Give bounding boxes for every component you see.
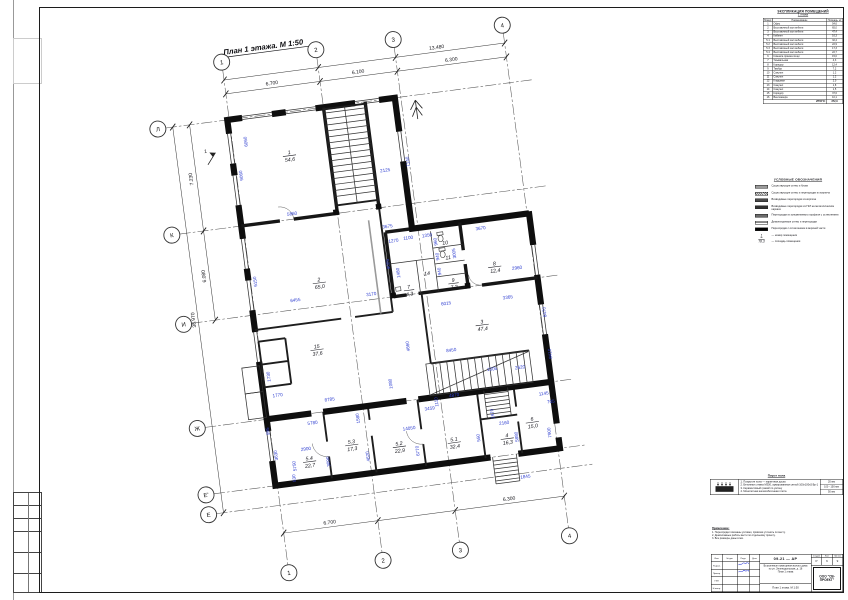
legend-item: Перегородки с остеклением в верхней част… xyxy=(755,227,841,231)
dimension-label: 6.300 xyxy=(445,56,458,64)
dimension-label: 13.480 xyxy=(429,44,445,52)
explication-table: Номер помещ. Наименование Площадь, м² 1О… xyxy=(763,18,843,104)
interior-walls-main xyxy=(227,82,537,315)
notes-panel: Примечание: 1. Перегородки показаны усло… xyxy=(712,527,812,540)
dimension-label: 6.700 xyxy=(265,80,278,88)
legend-items: Существующие стены и блокиСуществующие с… xyxy=(755,185,841,232)
dimension-label: 7900 xyxy=(546,427,552,438)
axis-bubble-2: 2 xyxy=(307,41,325,59)
dimension-label: 1505 xyxy=(487,366,498,372)
tb-staff-row: Провер. xyxy=(712,570,760,578)
glazed-partition-swatch xyxy=(755,228,768,232)
staircase-exit xyxy=(493,454,520,484)
svg-text:12,4: 12,4 xyxy=(490,268,501,275)
dimension-label: 1080 xyxy=(387,378,393,389)
axis-bubble-1: 1 xyxy=(280,564,298,582)
staircase-main xyxy=(324,104,378,206)
room-label: 14 xyxy=(424,271,431,278)
dimension-label: 5750 xyxy=(291,460,297,471)
svg-text:7,2: 7,2 xyxy=(450,284,458,291)
axis-bubble-Ж: Ж xyxy=(188,419,206,437)
dimension-label: 995 xyxy=(265,427,271,436)
tb-staff-row: Н.контр. xyxy=(712,585,760,592)
svg-text:32,4: 32,4 xyxy=(450,444,461,451)
dimension-label: 6455 xyxy=(290,297,301,303)
dimension-label: 2960 xyxy=(512,265,523,271)
svg-text:16,3: 16,3 xyxy=(502,440,513,447)
dimension-label: 5860 xyxy=(287,211,298,217)
legend-item: Возводимые перегородки из ГКЛ на металли… xyxy=(755,205,841,211)
room-label: 265,0 xyxy=(312,276,327,291)
room-label: 5.317,3 xyxy=(344,439,359,454)
side-stamp-lower xyxy=(13,492,42,593)
dimension-label: 1145 xyxy=(538,390,549,396)
dimension-label: 6150 xyxy=(252,276,258,287)
legend-symbols: 1— номер помещения78,3— площадь помещени… xyxy=(755,234,841,244)
dimension-label: 14050 xyxy=(402,425,416,432)
tb-staff-row: ГИП xyxy=(712,577,760,585)
svg-text:15,0: 15,0 xyxy=(528,423,539,430)
dimension-label: 7140 xyxy=(405,156,411,167)
signature xyxy=(738,563,749,567)
floor-buildup-items: 1. Покрытие пола — паркетная доска2. Бет… xyxy=(739,480,820,495)
tb-staff-row: Разраб. xyxy=(712,562,760,570)
explication-subtitle: 1 этажа xyxy=(763,14,843,17)
dimension-label: 1845 xyxy=(520,473,531,479)
signature xyxy=(738,570,749,574)
dimension-label: 3170 xyxy=(366,291,377,297)
svg-text:17,3: 17,3 xyxy=(347,446,358,453)
dimension-label: 4660 xyxy=(405,340,411,351)
document-code: 09-21 — АР xyxy=(760,555,811,564)
plan-title: План 1 этажа. М 1:50 xyxy=(223,37,305,57)
room-label: 10 xyxy=(442,240,449,247)
axis-bubble-4: 4 xyxy=(493,16,511,34)
dimension-label: 3090 xyxy=(325,456,331,467)
svg-text:Л: Л xyxy=(156,127,161,133)
svg-text:4,3: 4,3 xyxy=(406,291,414,298)
dimension-label: 4620 xyxy=(365,451,371,462)
svg-text:10: 10 xyxy=(442,240,449,247)
explication-body: 1Офис54,62Выставочный зал мебели65,03Выс… xyxy=(763,22,843,100)
legend-panel: УСЛОВНЫЕ ОБОЗНАЧЕНИЯ Существующие стены … xyxy=(755,178,841,246)
svg-text:22,9: 22,9 xyxy=(394,448,406,455)
legend-item: Возводимые перегородки из кирпича xyxy=(755,198,841,202)
dimension-label: 940 xyxy=(436,267,442,276)
floor-layer: 4. Монолитная железобетонная плита xyxy=(741,490,819,493)
floor-buildup-thickness: 20 мм100 - 150 мм50 мм xyxy=(820,480,843,495)
svg-text:И: И xyxy=(181,322,186,329)
dimension-label: 1580 xyxy=(355,413,361,424)
dimension-label: 6470 xyxy=(541,306,547,317)
dimension-label: 6.080 xyxy=(201,269,209,282)
axis-bubble-3: 3 xyxy=(451,541,469,559)
svg-text:11: 11 xyxy=(445,255,451,262)
svg-text:Е: Е xyxy=(206,513,211,519)
existing-wall-swatch xyxy=(755,185,768,189)
dimension-label: 6.100 xyxy=(352,69,365,77)
axis-bubble-Л: Л xyxy=(149,120,167,138)
dimension-label: 3675 xyxy=(382,223,393,229)
dimension-label: 3630 xyxy=(273,450,279,461)
sheet-name: План 1 этажа. М 1:50 xyxy=(760,584,811,592)
demounted-partition-swatch xyxy=(755,221,768,225)
dimension-label: 2620 xyxy=(515,364,526,370)
total-value: 372,9 xyxy=(826,100,843,104)
dimension-label: 7.230 xyxy=(188,172,196,185)
svg-text:47,4: 47,4 xyxy=(477,326,488,333)
axis-bubble-Е: Е xyxy=(200,506,218,524)
stage-sheet-cells: СтадияР Лист6 Листов9 xyxy=(812,555,843,566)
room-label: 5.132,4 xyxy=(447,436,462,451)
notes-lines: 1. Перегородки показаны условно, привязк… xyxy=(712,531,812,540)
axis-bubble-2: 2 xyxy=(374,551,392,569)
explication-total-row: ИТОГО: 372,9 xyxy=(763,100,843,104)
legend-item: Существующие стены и блоки xyxy=(755,185,841,189)
room-label: 812,4 xyxy=(487,260,502,275)
dimension-label: 1480 xyxy=(395,267,401,278)
notes-title: Примечание: xyxy=(712,527,812,530)
axis-bubble-Е': Е' xyxy=(197,486,215,504)
tb-header-row: Изм.№ док.Подп.Дата xyxy=(712,555,760,563)
legend-symbol: 78,3— площадь помещения xyxy=(755,240,841,244)
dimension-label: 1100 xyxy=(403,235,414,241)
dimension-label: 3365 xyxy=(502,294,513,300)
dimension-label: 6.700 xyxy=(323,519,336,527)
legend-title: УСЛОВНЫЕ ОБОЗНАЧЕНИЯ xyxy=(755,178,841,182)
dimension-label: 8450 xyxy=(446,347,457,353)
floor-buildup-panel: Пирог пола 1. Покрытие пола — паркетная … xyxy=(710,474,843,495)
axis-bubble-К: К xyxy=(163,226,181,244)
dimension-label: 960 xyxy=(432,237,438,246)
floor-plan: 1 План 1 этажа. М 1:50 12341234ЛКИЖЕ'Е13… xyxy=(102,0,633,600)
dimension-label: 2125 xyxy=(380,167,391,173)
dimension-label: 2160 xyxy=(499,420,510,426)
svg-text:1: 1 xyxy=(204,149,208,155)
dimension-label: 1730 xyxy=(265,371,271,382)
drawing-sheet: 1 План 1 этажа. М 1:50 12341234ЛКИЖЕ'Е13… xyxy=(0,0,848,600)
north-benchmark-icon xyxy=(409,99,423,119)
dimension-label: 2900 xyxy=(300,446,311,452)
svg-text:65,0: 65,0 xyxy=(315,284,326,291)
dimension-label: 3670 xyxy=(475,225,486,231)
axis-bubble-4: 4 xyxy=(561,527,579,545)
dimension-label: 3005 xyxy=(451,248,457,259)
dimension-label: 8410 xyxy=(547,348,553,359)
dimension-label: 6770 xyxy=(414,445,420,456)
dimension-label: 530 xyxy=(291,474,297,483)
room-label: 1537,6 xyxy=(310,343,325,358)
dimension-label: 9060 xyxy=(238,170,244,181)
section-mark: 1 xyxy=(204,148,217,165)
svg-text:14: 14 xyxy=(424,271,431,278)
note-line: 3. Все размеры даны в мм. xyxy=(712,537,812,540)
existing-partition-swatch xyxy=(755,192,768,196)
dimension-label: 8785 xyxy=(324,396,335,402)
side-stamp-upper xyxy=(13,38,42,84)
svg-text:22,7: 22,7 xyxy=(304,462,317,470)
room-label: 5.222,9 xyxy=(392,440,407,455)
layer-thickness: 50 мм xyxy=(821,490,843,495)
explication-panel: ЭКСПЛИКАЦИЯ ПОМЕЩЕНИЙ 1 этажа Номер поме… xyxy=(763,10,843,104)
dimension-label: 6060 xyxy=(243,136,249,147)
title-block-signatures: Изм.№ док.Подп.Дата Разраб. Провер. ГИП … xyxy=(712,555,761,592)
dimension-label: 1270 xyxy=(388,238,399,244)
total-label: ИТОГО: xyxy=(763,100,826,104)
object-name: Встроенные помещения жилого дома по ул. … xyxy=(760,564,811,584)
dimension-label: 705 xyxy=(547,399,556,405)
new-brick-partition-swatch xyxy=(755,199,768,203)
interior-walls-light xyxy=(241,191,542,486)
room-label: 416,3 xyxy=(500,432,515,447)
svg-text:Е': Е' xyxy=(203,493,209,500)
room-label: 11 xyxy=(445,255,451,262)
room-label: 154,6 xyxy=(282,149,297,164)
dimension-label: 4870 xyxy=(449,392,460,398)
dimension-label: 5780 xyxy=(307,420,318,426)
legend-symbol: 1— номер помещения xyxy=(755,234,841,238)
room-label: 615,0 xyxy=(525,416,540,431)
room-label: 347,4 xyxy=(475,319,490,334)
floor-buildup-title: Пирог пола xyxy=(710,474,843,478)
legend-item: Существующие стены и перегородки из кирп… xyxy=(755,191,841,195)
dimension-label: 6.300 xyxy=(503,496,516,504)
aluminium-partition-swatch xyxy=(755,214,768,218)
room-label: 5.422,7 xyxy=(302,455,317,470)
floor-section-icon xyxy=(711,480,740,495)
new-gkl-partition-swatch xyxy=(755,205,768,209)
legend-item: Перегородки из алюминиевого профиля с ос… xyxy=(755,214,841,218)
title-block: Изм.№ док.Подп.Дата Разраб. Провер. ГИП … xyxy=(711,554,843,592)
dimension-label: 940 xyxy=(434,252,440,261)
svg-text:54,6: 54,6 xyxy=(285,157,296,164)
dimension-label: 1770 xyxy=(272,392,283,398)
svg-text:Ж: Ж xyxy=(194,426,201,433)
svg-text:37,6: 37,6 xyxy=(312,351,323,358)
organization-name: ООО "СВ-ПРОЕКТ" xyxy=(813,567,841,590)
dimension-label: 6015 xyxy=(441,300,452,306)
dimension-label: 38.970 xyxy=(190,312,198,328)
axis-bubble-3: 3 xyxy=(384,31,402,49)
dimension-label: 550 xyxy=(475,433,481,442)
legend-item: Демонтируемые стены и перегородки xyxy=(755,220,841,224)
